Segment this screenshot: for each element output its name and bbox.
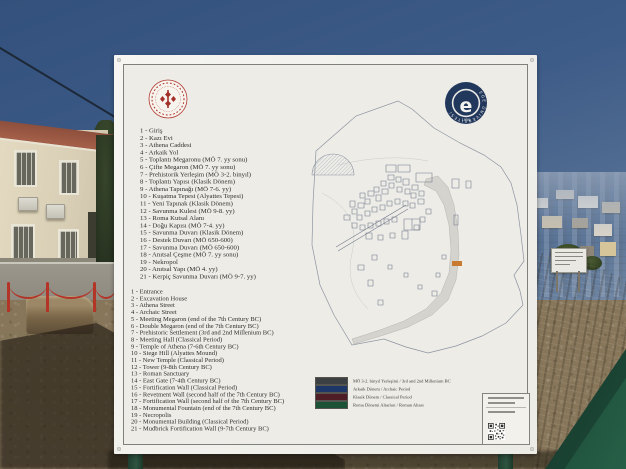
small-sign-leg (556, 271, 558, 292)
ac-unit (46, 204, 65, 219)
qr-code (488, 423, 505, 440)
period-color-swatch (315, 393, 348, 401)
excavation-house-building (0, 112, 108, 264)
photo-scene: EGE ÜNİVERSİTESİ e 1955 1 - Giriş2 - Kaz… (0, 0, 626, 469)
siege-hill-tumulus (312, 154, 354, 175)
map-legend-row: Arkaik Dönem / Archaic Period (315, 385, 548, 393)
map-contour (338, 158, 428, 165)
screw (117, 58, 121, 62)
period-label: Roma Dönemi Altarları / Roman Altars (353, 403, 424, 408)
period-color-swatch (315, 401, 348, 409)
city-building (600, 242, 616, 256)
small-site-sign (551, 248, 587, 273)
legend-list-item: 21 - Mudbrick Fortification Wall (9-7th … (131, 425, 351, 432)
ministry-seal-logo (148, 79, 188, 119)
site-map (308, 95, 532, 379)
qr-caption-line (488, 397, 524, 399)
information-board: EGE ÜNİVERSİTESİ e 1955 1 - Giriş2 - Kaz… (114, 55, 537, 454)
period-color-swatch (315, 385, 348, 393)
map-contour (322, 193, 368, 309)
period-label: Arkaik Dönem / Archaic Period (353, 387, 410, 392)
ac-unit (18, 197, 38, 211)
divider (486, 407, 526, 408)
period-color-swatch (315, 377, 348, 385)
screw (530, 447, 534, 451)
screw (530, 58, 534, 62)
building-window (59, 160, 79, 195)
building-window (14, 150, 37, 187)
map-highlight-marker (452, 261, 462, 266)
qr-info-box (482, 393, 530, 445)
small-sign-leg (578, 271, 580, 292)
period-label: Klasik Dönem / Classical Period (353, 395, 412, 400)
period-label: MÖ 3-2. binyıl Yerleşimi / 3rd and 2nd M… (353, 379, 451, 384)
screw (117, 447, 121, 451)
trees (96, 135, 116, 265)
qr-caption-line (488, 411, 515, 413)
map-legend-row: MÖ 3-2. binyıl Yerleşimi / 3rd and 2nd M… (315, 377, 548, 385)
qr-caption-line (488, 402, 515, 404)
